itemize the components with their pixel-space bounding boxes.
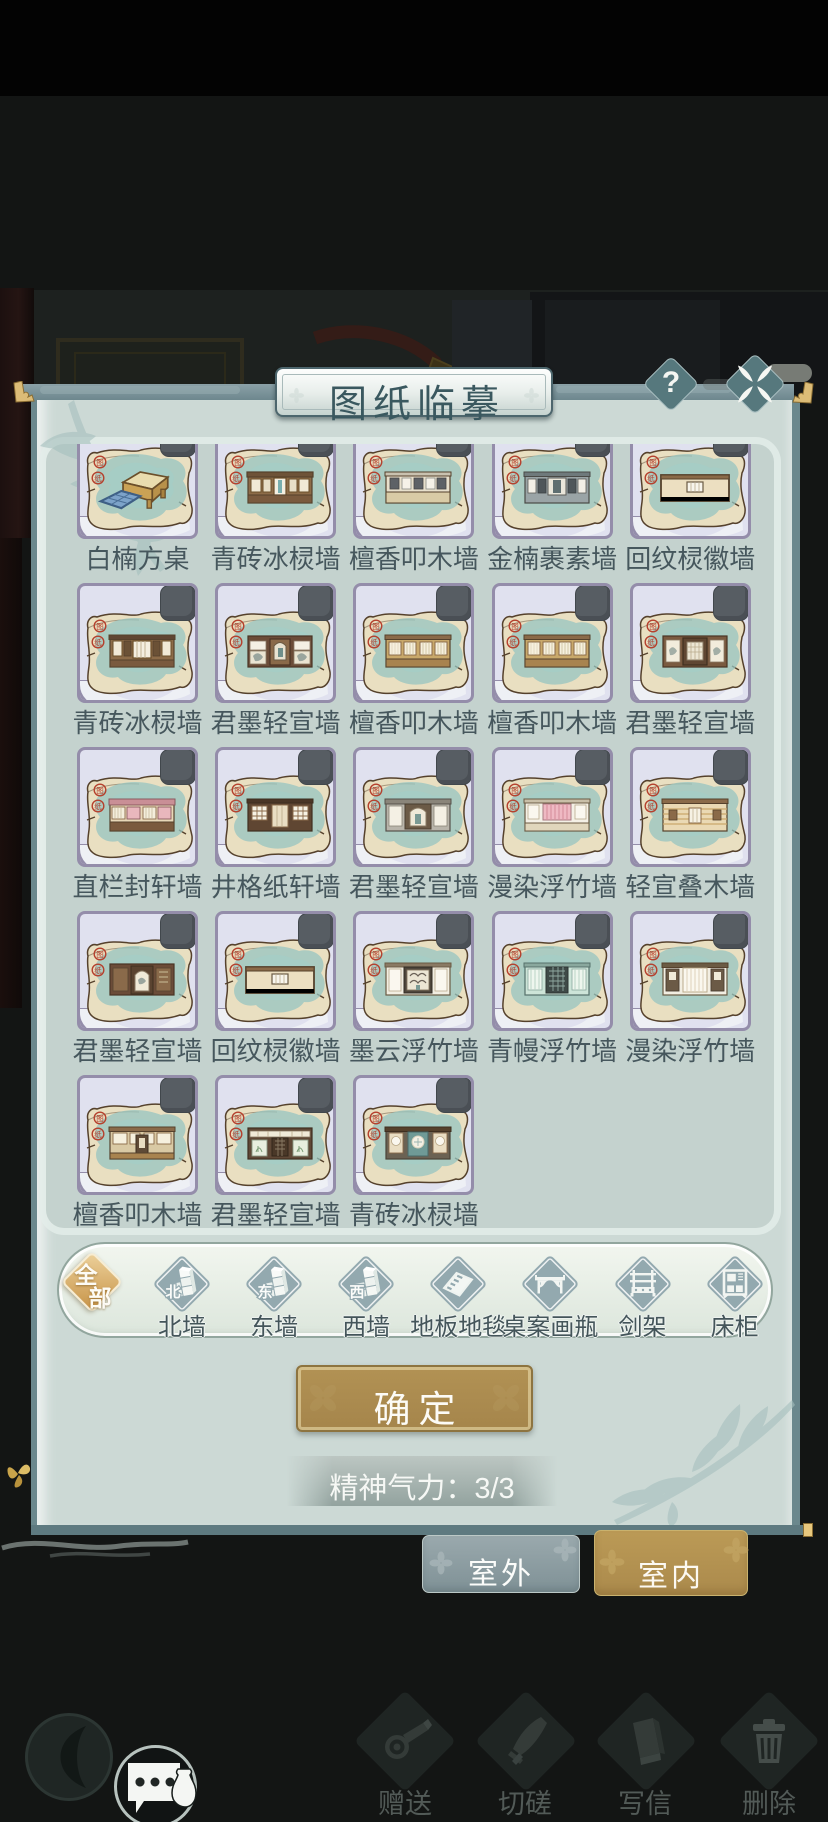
svg-text:纸: 纸 bbox=[371, 965, 379, 975]
svg-text:纸: 纸 bbox=[509, 801, 517, 811]
svg-text:纸: 纸 bbox=[232, 1129, 240, 1139]
svg-text:图: 图 bbox=[373, 622, 381, 631]
svg-text:图: 图 bbox=[96, 458, 104, 467]
svg-text:图: 图 bbox=[373, 1114, 381, 1123]
svg-text:图: 图 bbox=[649, 458, 657, 467]
svg-text:纸: 纸 bbox=[371, 637, 379, 647]
svg-text:纸: 纸 bbox=[94, 637, 102, 647]
svg-text:纸: 纸 bbox=[509, 637, 517, 647]
svg-text:图: 图 bbox=[373, 786, 381, 795]
svg-text:纸: 纸 bbox=[94, 1129, 102, 1139]
svg-text:纸: 纸 bbox=[94, 473, 102, 483]
svg-text:纸: 纸 bbox=[232, 801, 240, 811]
svg-text:纸: 纸 bbox=[232, 473, 240, 483]
svg-text:纸: 纸 bbox=[94, 801, 102, 811]
svg-text:图: 图 bbox=[373, 458, 381, 467]
svg-text:图: 图 bbox=[234, 458, 242, 467]
svg-text:纸: 纸 bbox=[647, 473, 655, 483]
svg-text:纸: 纸 bbox=[232, 965, 240, 975]
svg-text:纸: 纸 bbox=[371, 473, 379, 483]
svg-text:纸: 纸 bbox=[94, 965, 102, 975]
svg-text:纸: 纸 bbox=[647, 801, 655, 811]
svg-text:纸: 纸 bbox=[647, 637, 655, 647]
svg-text:图: 图 bbox=[511, 950, 519, 959]
svg-text:图: 图 bbox=[511, 458, 519, 467]
svg-text:图: 图 bbox=[234, 622, 242, 631]
svg-text:纸: 纸 bbox=[232, 637, 240, 647]
svg-text:纸: 纸 bbox=[647, 965, 655, 975]
svg-text:图: 图 bbox=[511, 622, 519, 631]
svg-text:纸: 纸 bbox=[509, 965, 517, 975]
svg-text:西: 西 bbox=[350, 1284, 365, 1301]
svg-text:东: 东 bbox=[258, 1283, 273, 1301]
svg-text:纸: 纸 bbox=[371, 1129, 379, 1139]
svg-text:图: 图 bbox=[234, 950, 242, 959]
svg-text:图: 图 bbox=[96, 950, 104, 959]
svg-text:图: 图 bbox=[649, 786, 657, 795]
svg-text:图: 图 bbox=[96, 786, 104, 795]
svg-text:图: 图 bbox=[649, 622, 657, 631]
svg-text:图: 图 bbox=[96, 1114, 104, 1123]
svg-text:纸: 纸 bbox=[509, 473, 517, 483]
svg-text:图: 图 bbox=[96, 622, 104, 631]
svg-text:图: 图 bbox=[373, 950, 381, 959]
svg-text:图: 图 bbox=[511, 786, 519, 795]
svg-text:图: 图 bbox=[649, 950, 657, 959]
svg-text:北: 北 bbox=[165, 1284, 180, 1301]
svg-text:图: 图 bbox=[234, 786, 242, 795]
svg-text:图: 图 bbox=[234, 1114, 242, 1123]
svg-text:纸: 纸 bbox=[371, 801, 379, 811]
